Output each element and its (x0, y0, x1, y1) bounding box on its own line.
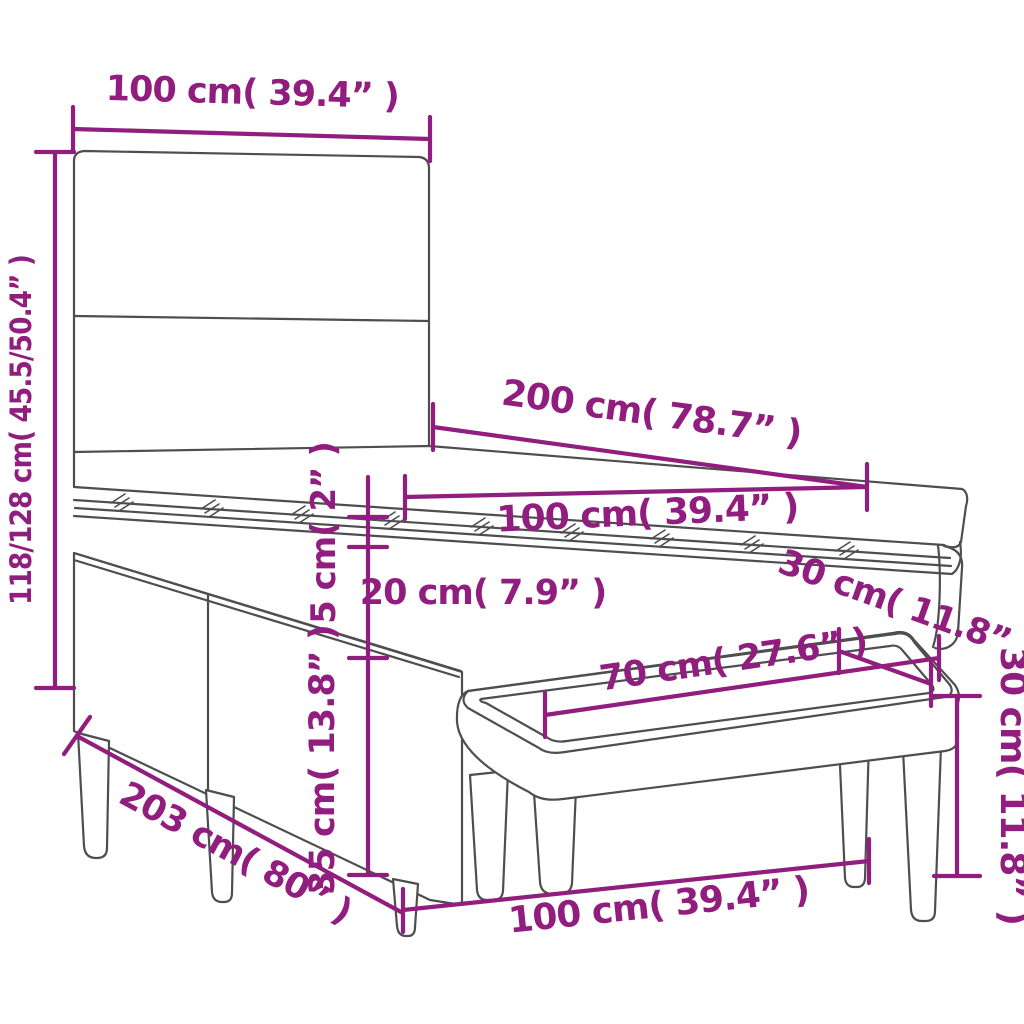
dim-headboard-width: 100 cm( 39.4” ) (73, 69, 430, 161)
dim-headboard-width-label: 100 cm( 39.4” ) (105, 69, 399, 117)
dim-bench-height-label: 30 cm( 11.8” ) (992, 647, 1024, 925)
product-dimension-diagram: 100 cm( 39.4” ) 118/128 cm( 45.5/50.4” )… (0, 0, 1024, 1024)
dim-base-height-label: 35 cm( 13.8” ) (303, 625, 343, 895)
dim-mattress-thickness-label: 20 cm( 7.9” ) (360, 573, 606, 613)
dim-bench-length: 100 cm( 39.4” ) (403, 839, 869, 942)
dim-topper-thickness-label: 5 cm( 2” ) (304, 442, 344, 624)
headboard (74, 151, 429, 458)
bench-leg (903, 746, 941, 921)
bed-dimension-drawing: 100 cm( 39.4” ) 118/128 cm( 45.5/50.4” )… (0, 0, 1024, 1024)
bench-leg (470, 771, 508, 900)
dim-overall-height-line (36, 152, 74, 688)
bench-leg (534, 788, 576, 894)
dim-overall-height-label: 118/128 cm( 45.5/50.4” ) (4, 255, 38, 605)
dim-overall-height: 118/128 cm( 45.5/50.4” ) (4, 152, 74, 688)
